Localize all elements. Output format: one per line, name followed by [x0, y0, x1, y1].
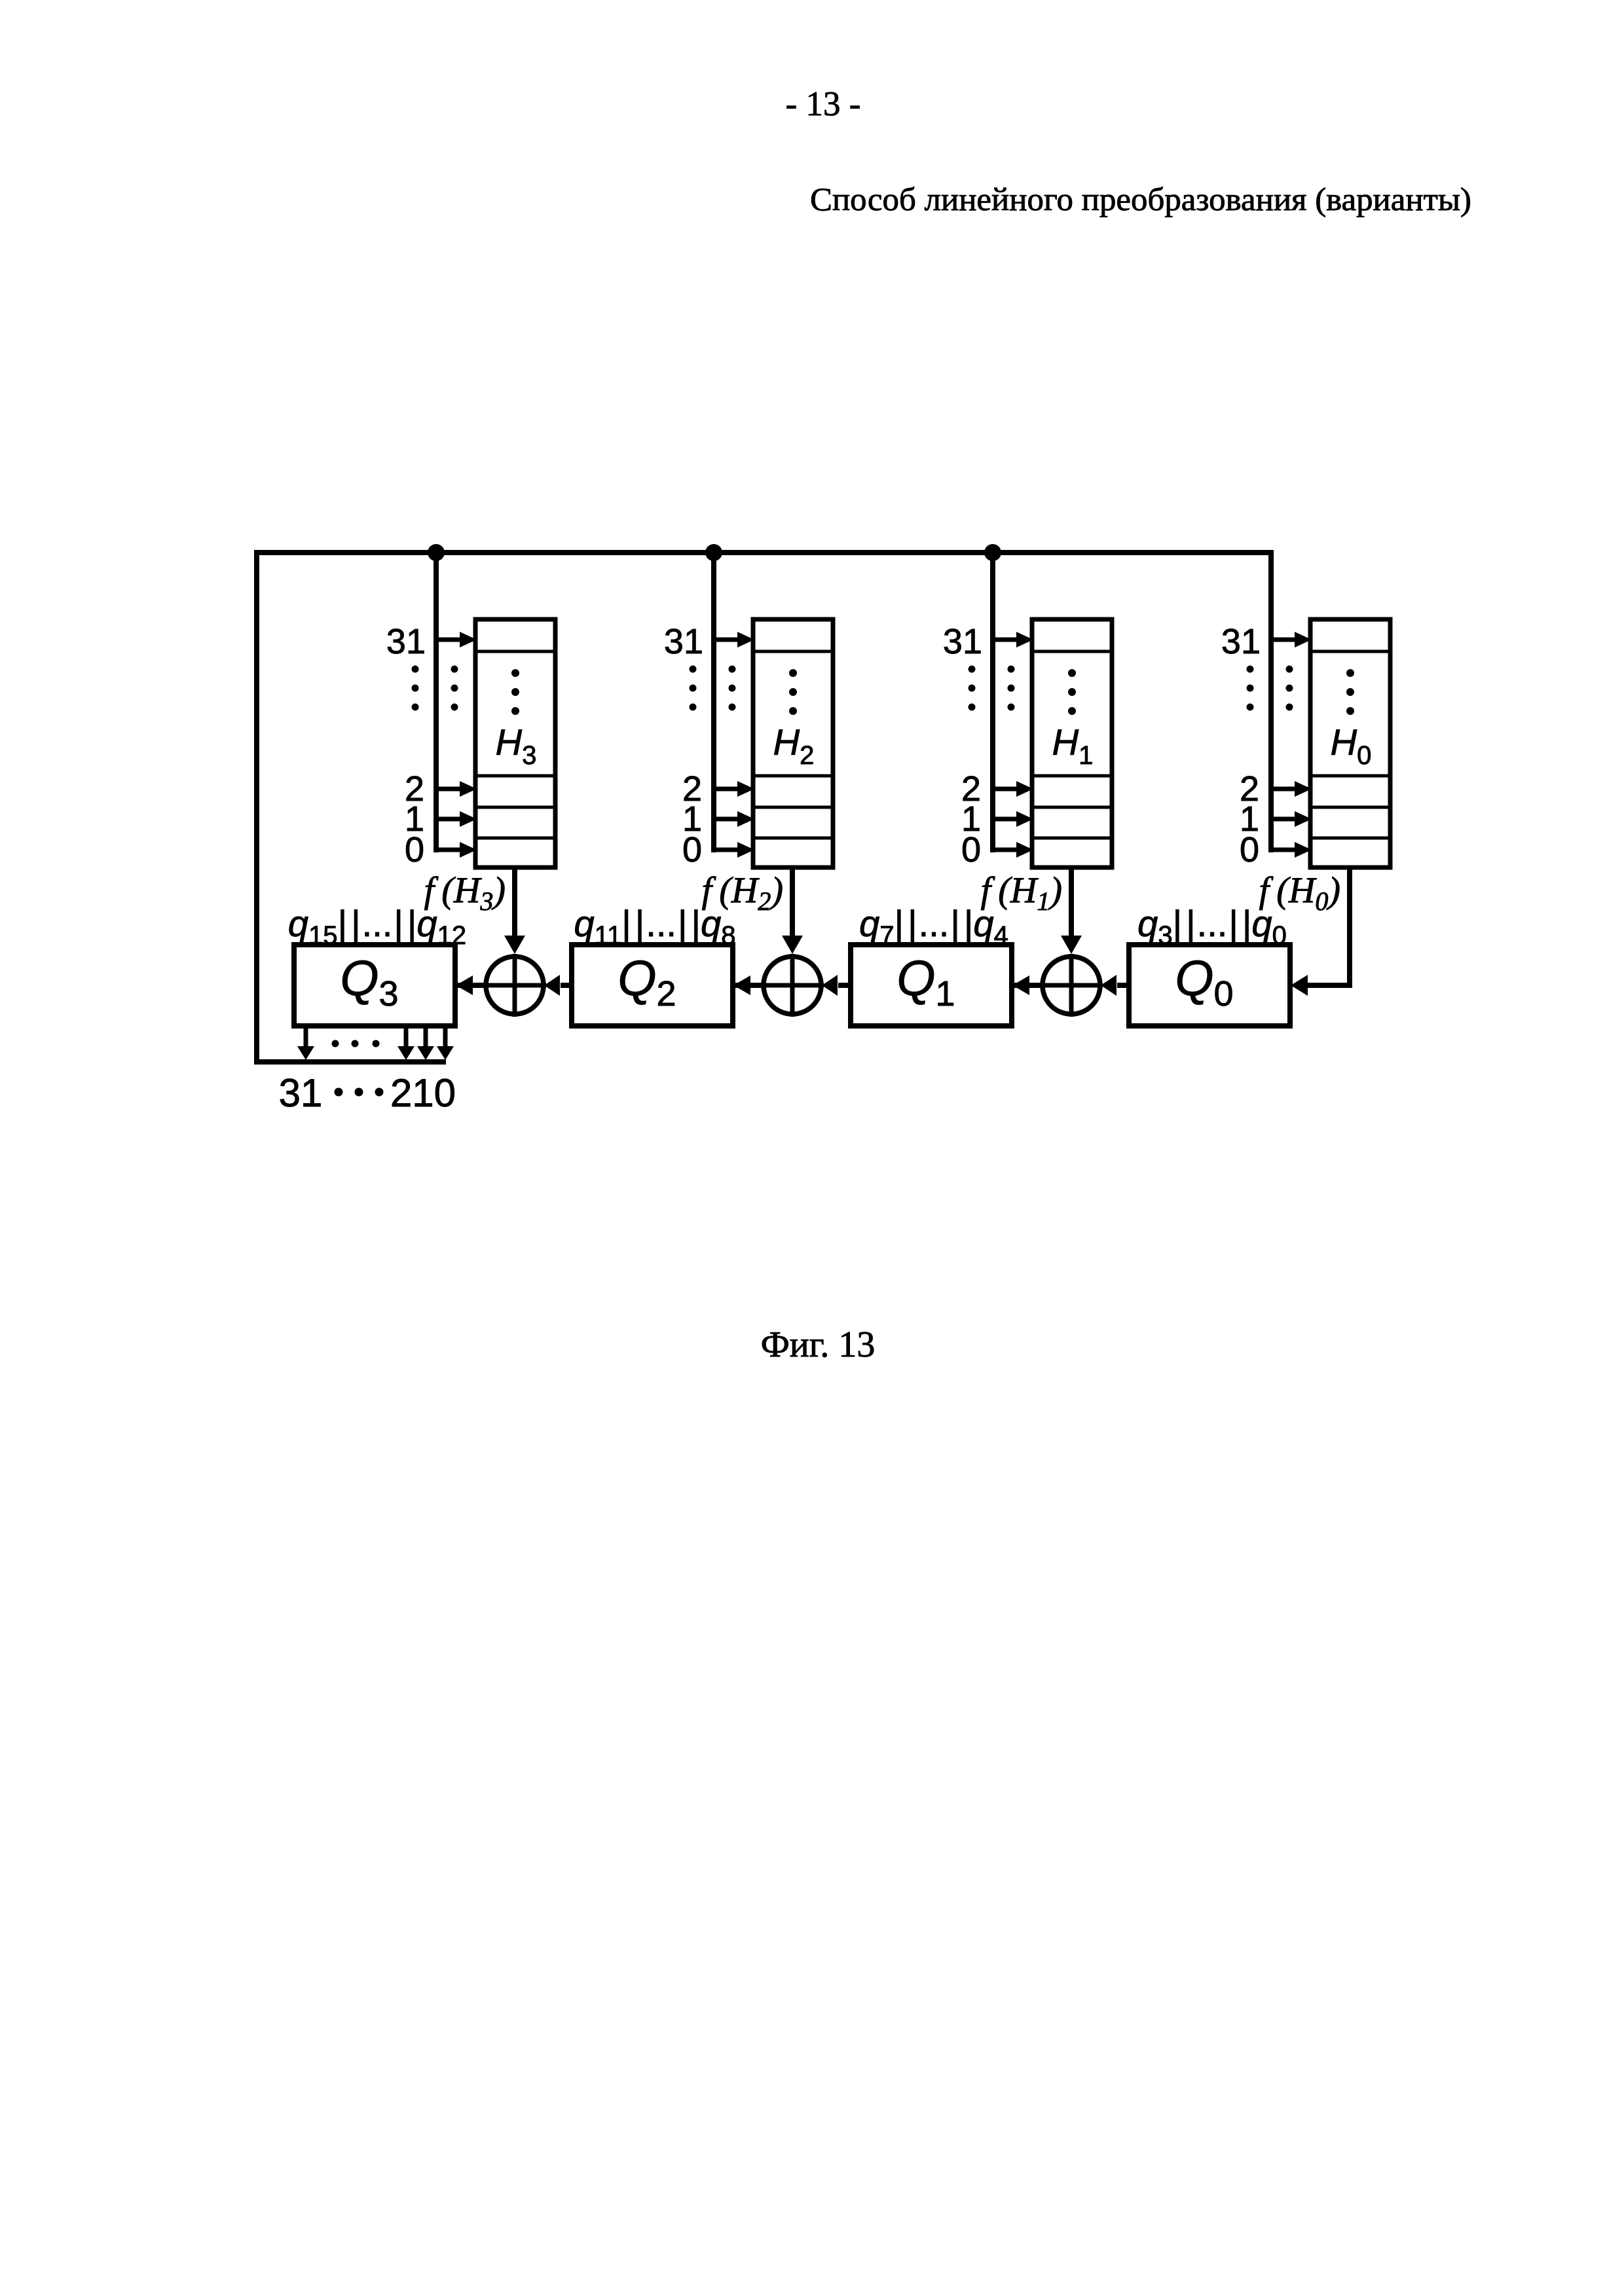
svg-text:0: 0 [682, 830, 702, 869]
svg-text:0: 0 [1240, 830, 1259, 869]
svg-text:Способ линейного преобразовани: Способ линейного преобразования (вариант… [810, 181, 1471, 217]
svg-text:31: 31 [943, 622, 982, 661]
svg-text:- 13 -: - 13 - [786, 85, 861, 123]
svg-text:31: 31 [664, 622, 703, 661]
svg-text:210: 210 [390, 1071, 456, 1115]
svg-text:0: 0 [961, 830, 981, 869]
svg-text:Фиг. 13: Фиг. 13 [761, 1324, 876, 1365]
svg-text:31: 31 [279, 1071, 323, 1115]
svg-text:31: 31 [1221, 622, 1261, 661]
svg-text:31: 31 [386, 622, 426, 661]
svg-text:0: 0 [405, 830, 424, 869]
